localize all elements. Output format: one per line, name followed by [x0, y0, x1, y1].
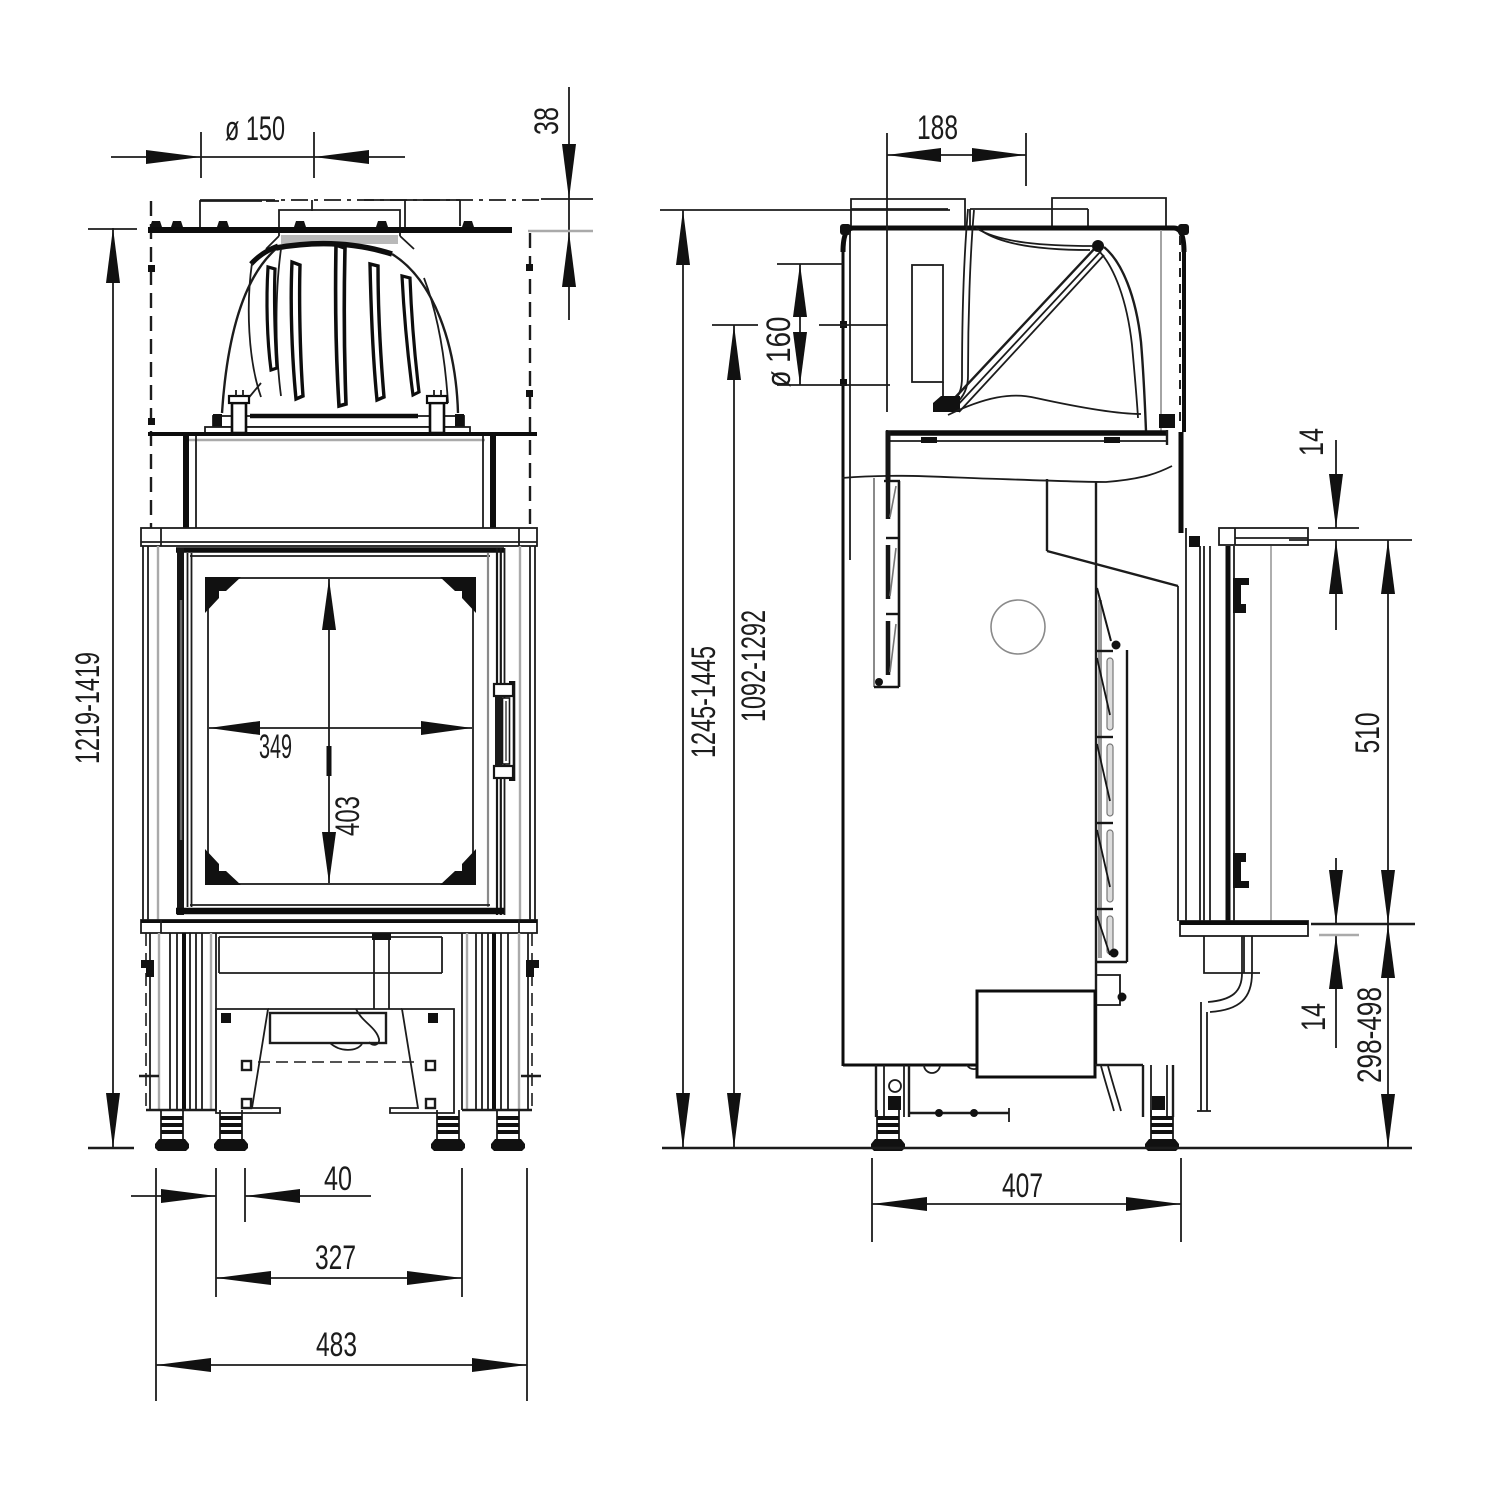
svg-text:188: 188 [917, 109, 958, 147]
svg-text:298-498: 298-498 [1351, 987, 1389, 1083]
svg-text:38: 38 [528, 107, 566, 135]
svg-text:407: 407 [1002, 1167, 1043, 1205]
svg-text:510: 510 [1349, 713, 1387, 754]
svg-text:483: 483 [316, 1326, 357, 1364]
svg-text:1092-1292: 1092-1292 [735, 610, 773, 722]
svg-text:14: 14 [1295, 1003, 1333, 1031]
svg-text:1219-1419: 1219-1419 [69, 652, 107, 764]
svg-text:1245-1445: 1245-1445 [685, 646, 723, 758]
svg-text:ø 160: ø 160 [760, 317, 798, 388]
svg-text:40: 40 [324, 1160, 352, 1198]
svg-text:ø 150: ø 150 [225, 110, 285, 148]
svg-text:327: 327 [315, 1239, 356, 1277]
svg-text:349: 349 [259, 728, 292, 766]
svg-text:403: 403 [329, 796, 367, 836]
svg-text:14: 14 [1293, 428, 1331, 456]
